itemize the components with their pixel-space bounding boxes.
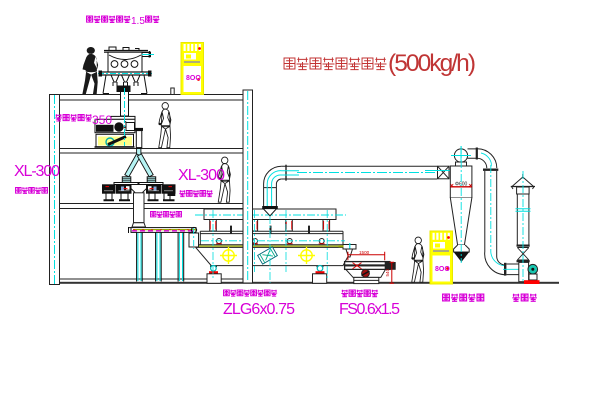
svg-text:FS0.6x1.5: FS0.6x1.5 — [339, 301, 400, 318]
svg-text:1.5: 1.5 — [131, 16, 145, 27]
svg-text:8OO: 8OO — [435, 266, 450, 273]
svg-text:8OO: 8OO — [186, 75, 201, 82]
svg-text:XL-300: XL-300 — [178, 167, 225, 184]
svg-text:350: 350 — [92, 113, 112, 127]
svg-text:1500: 1500 — [359, 250, 370, 255]
svg-text:XL-300: XL-300 — [14, 163, 60, 180]
svg-text:ZLG6x0.75: ZLG6x0.75 — [223, 301, 295, 318]
svg-text:540: 540 — [385, 268, 390, 276]
svg-text:(500kg/h): (500kg/h) — [388, 50, 476, 77]
